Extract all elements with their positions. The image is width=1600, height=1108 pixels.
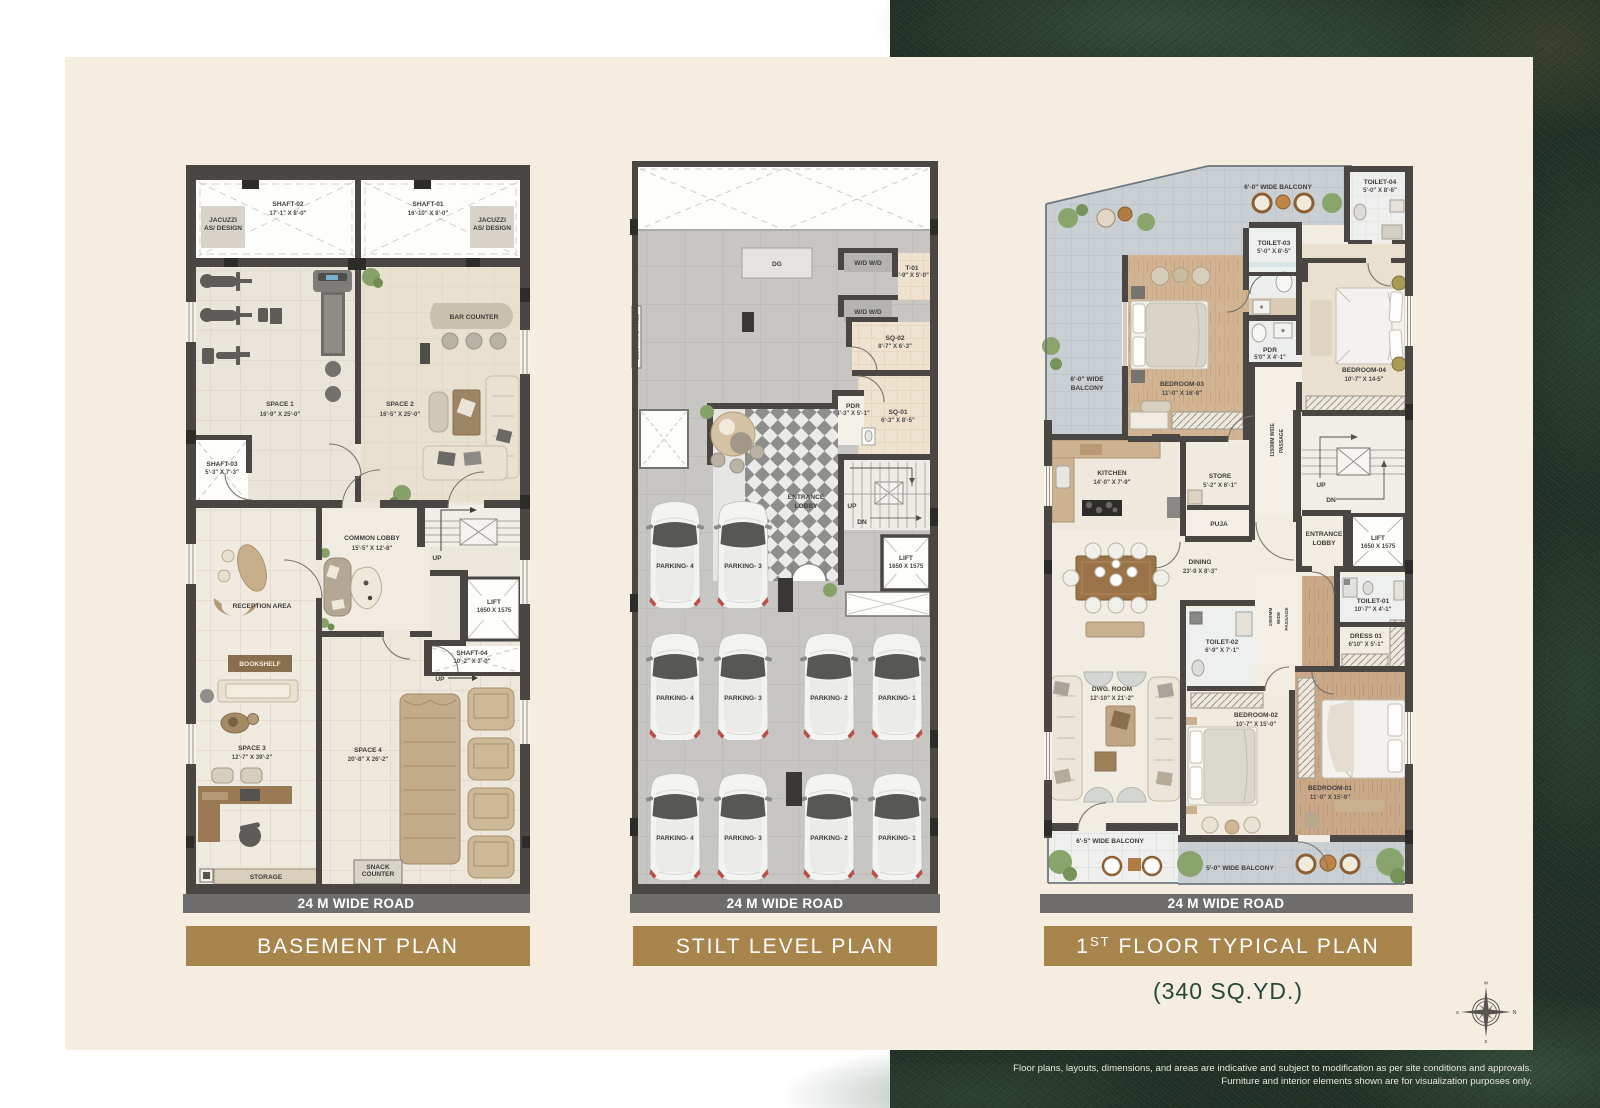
svg-text:TOILET-03: TOILET-03 xyxy=(1258,240,1291,247)
svg-text:LIFT: LIFT xyxy=(899,555,913,562)
svg-text:RECEPTION AREA: RECEPTION AREA xyxy=(233,603,292,610)
svg-text:UP: UP xyxy=(432,555,442,562)
svg-text:S: S xyxy=(1456,1010,1459,1015)
svg-text:COMMON LOBBY: COMMON LOBBY xyxy=(344,535,400,542)
svg-text:BALCONY: BALCONY xyxy=(1071,385,1104,392)
svg-text:BOOKSHELF: BOOKSHELF xyxy=(239,661,280,668)
svg-text:SHAFT-03: SHAFT-03 xyxy=(206,461,237,468)
svg-text:16'-9" X 25'-0": 16'-9" X 25'-0" xyxy=(260,411,301,418)
svg-text:5'-2" X 6'-1": 5'-2" X 6'-1" xyxy=(1203,482,1237,489)
svg-text:8'-7" X 6'-3": 8'-7" X 6'-3" xyxy=(878,343,912,350)
svg-text:PARKING- 3: PARKING- 3 xyxy=(724,835,762,842)
svg-text:JACUZZI: JACUZZI xyxy=(478,217,506,224)
svg-text:STILT LEVEL PLAN: STILT LEVEL PLAN xyxy=(676,935,894,958)
svg-text:12'-7" X 39'-2": 12'-7" X 39'-2" xyxy=(232,754,273,761)
svg-text:WIDE: WIDE xyxy=(1276,611,1282,624)
svg-text:COUNTER: COUNTER xyxy=(362,871,395,878)
svg-text:PASSAGE: PASSAGE xyxy=(1279,428,1285,453)
svg-text:SQ-02: SQ-02 xyxy=(885,335,904,342)
svg-text:1650 X 1575: 1650 X 1575 xyxy=(477,607,512,614)
svg-text:AS/ DESIGN: AS/ DESIGN xyxy=(473,225,511,232)
svg-text:PARKING- 3: PARKING- 3 xyxy=(724,695,762,702)
svg-text:Floor plans, layouts, dimensio: Floor plans, layouts, dimensions, and ar… xyxy=(1013,1063,1532,1074)
svg-text:PARKING- 3: PARKING- 3 xyxy=(724,563,762,570)
svg-text:PDR: PDR xyxy=(846,403,860,410)
svg-text:5'0" X 4'-1": 5'0" X 4'-1" xyxy=(1254,354,1286,361)
svg-text:N: N xyxy=(1513,1010,1517,1016)
svg-text:6'-0" WIDE: 6'-0" WIDE xyxy=(1070,376,1104,383)
svg-text:14'-0" X 7'-9": 14'-0" X 7'-9" xyxy=(1093,479,1130,486)
svg-text:UP: UP xyxy=(1316,482,1326,489)
svg-text:11'-0" X 15'-9": 11'-0" X 15'-9" xyxy=(1310,794,1350,801)
svg-text:PARKING- 4: PARKING- 4 xyxy=(656,563,694,570)
svg-text:SPACE 3: SPACE 3 xyxy=(238,745,266,752)
svg-text:1ST FLOOR TYPICAL PLAN: 1ST FLOOR TYPICAL PLAN xyxy=(1076,934,1379,958)
svg-text:KITCHEN: KITCHEN xyxy=(1097,470,1127,477)
svg-text:PDR: PDR xyxy=(1263,347,1277,354)
svg-text:PARKING- 2: PARKING- 2 xyxy=(810,835,848,842)
svg-text:SPACE 4: SPACE 4 xyxy=(354,747,382,754)
svg-text:4'-9" X 5'-0": 4'-9" X 5'-0" xyxy=(895,272,929,279)
svg-text:LIFT: LIFT xyxy=(487,599,501,606)
svg-text:LOBBY: LOBBY xyxy=(794,503,818,510)
svg-text:TOILET-04: TOILET-04 xyxy=(1364,179,1397,186)
svg-text:SPACE 1: SPACE 1 xyxy=(266,401,294,408)
svg-text:5'-0" WIDE BALCONY: 5'-0" WIDE BALCONY xyxy=(1206,865,1274,872)
svg-text:6'10" X 5'-1": 6'10" X 5'-1" xyxy=(1348,641,1383,648)
svg-text:TOILET-02: TOILET-02 xyxy=(1206,639,1239,646)
svg-text:10'-7" X 4'-1": 10'-7" X 4'-1" xyxy=(1354,606,1391,613)
svg-text:12'-10" X 21'-2": 12'-10" X 21'-2" xyxy=(1090,695,1134,702)
svg-text:PARKING- 1: PARKING- 1 xyxy=(878,695,916,702)
svg-text:DRESS 01: DRESS 01 xyxy=(1350,633,1382,640)
svg-text:SPACE 2: SPACE 2 xyxy=(386,401,414,408)
svg-text:ENTRANCE: ENTRANCE xyxy=(788,494,825,501)
svg-text:DN: DN xyxy=(1326,497,1336,504)
svg-text:16'-10" X 8'-0": 16'-10" X 8'-0" xyxy=(408,210,449,217)
svg-text:BEDROOM-03: BEDROOM-03 xyxy=(1160,381,1204,388)
svg-text:BEDROOM-02: BEDROOM-02 xyxy=(1234,712,1278,719)
svg-text:BEDROOM-01: BEDROOM-01 xyxy=(1308,785,1352,792)
svg-text:BEDROOM-04: BEDROOM-04 xyxy=(1342,367,1386,374)
svg-text:AS/ DESIGN: AS/ DESIGN xyxy=(204,225,242,232)
svg-text:ENTRANCE: ENTRANCE xyxy=(1306,531,1343,538)
svg-text:E: E xyxy=(1484,1039,1487,1044)
svg-text:24 M WIDE ROAD: 24 M WIDE ROAD xyxy=(727,896,844,911)
svg-text:(340 SQ.YD.): (340 SQ.YD.) xyxy=(1153,978,1303,1004)
svg-text:10'-7" X 14-5": 10'-7" X 14-5" xyxy=(1344,376,1383,383)
svg-text:SQ-01: SQ-01 xyxy=(888,409,907,416)
svg-text:24 M WIDE ROAD: 24 M WIDE ROAD xyxy=(298,896,415,911)
svg-text:SHAFT-04: SHAFT-04 xyxy=(456,650,487,657)
svg-text:SNACK: SNACK xyxy=(366,864,390,871)
svg-text:PARKING- 4: PARKING- 4 xyxy=(656,695,694,702)
svg-text:JACUZZI: JACUZZI xyxy=(209,217,237,224)
svg-text:5'-0" X 8'-5": 5'-0" X 8'-5" xyxy=(1257,248,1291,255)
svg-text:T-01: T-01 xyxy=(905,265,919,272)
svg-text:SHAFT-01: SHAFT-01 xyxy=(412,201,443,208)
svg-text:DG: DG xyxy=(772,261,782,268)
svg-text:DWG. ROOM: DWG. ROOM xyxy=(1092,686,1133,693)
svg-text:LOBBY: LOBBY xyxy=(1312,540,1336,547)
svg-text:5'-0" X 8'-6": 5'-0" X 8'-6" xyxy=(1363,187,1397,194)
svg-text:5'-3" X 7'-3": 5'-3" X 7'-3" xyxy=(205,469,239,476)
svg-text:DN: DN xyxy=(857,519,867,526)
svg-text:STORE: STORE xyxy=(1209,473,1232,480)
svg-text:6'-0" WIDE BALCONY: 6'-0" WIDE BALCONY xyxy=(1244,184,1312,191)
svg-text:6'-3" X 8'-5": 6'-3" X 8'-5" xyxy=(881,417,915,424)
svg-text:10'-2" X 3'-0": 10'-2" X 3'-0" xyxy=(453,658,490,665)
svg-text:1050MM: 1050MM xyxy=(1268,608,1274,627)
svg-text:4'-3" X 5'-1": 4'-3" X 5'-1" xyxy=(836,410,870,417)
svg-text:17'-1" X 8'-0": 17'-1" X 8'-0" xyxy=(269,210,306,217)
svg-text:W/D W/D: W/D W/D xyxy=(854,309,882,316)
svg-text:6'-9" X 7'-1": 6'-9" X 7'-1" xyxy=(1205,647,1239,654)
svg-text:TOILET-01: TOILET-01 xyxy=(1357,598,1390,605)
svg-text:DINING: DINING xyxy=(1188,559,1211,566)
svg-text:PUJA: PUJA xyxy=(1210,521,1228,528)
svg-text:BAR COUNTER: BAR COUNTER xyxy=(450,314,499,321)
svg-text:24 M WIDE ROAD: 24 M WIDE ROAD xyxy=(1168,896,1285,911)
svg-text:PARKING- 1: PARKING- 1 xyxy=(878,835,916,842)
svg-text:1650 X 1575: 1650 X 1575 xyxy=(1361,543,1396,550)
svg-text:PASSAGE: PASSAGE xyxy=(1284,607,1290,631)
svg-text:15'-5" X 12'-8": 15'-5" X 12'-8" xyxy=(352,545,393,552)
svg-text:6'-5" WIDE BALCONY: 6'-5" WIDE BALCONY xyxy=(1076,838,1144,845)
svg-text:SHAFT-02: SHAFT-02 xyxy=(272,201,303,208)
svg-text:LIFT: LIFT xyxy=(1371,535,1385,542)
svg-text:W/D W/D: W/D W/D xyxy=(854,260,882,267)
svg-text:PARKING- 4: PARKING- 4 xyxy=(656,835,694,842)
svg-text:16'-5" X 25'-0": 16'-5" X 25'-0" xyxy=(380,411,421,418)
svg-text:UP: UP xyxy=(435,676,445,683)
svg-text:1150MM WIDE: 1150MM WIDE xyxy=(1270,423,1276,457)
svg-text:PARKING- 2: PARKING- 2 xyxy=(810,695,848,702)
svg-text:23'-9 X 8'-3": 23'-9 X 8'-3" xyxy=(1183,568,1217,575)
svg-text:1650 X 1575: 1650 X 1575 xyxy=(889,563,924,570)
svg-text:STORAGE: STORAGE xyxy=(250,874,283,881)
svg-text:20'-8" X 26'-2": 20'-8" X 26'-2" xyxy=(348,756,389,763)
svg-text:Furniture and interior element: Furniture and interior elements shown ar… xyxy=(1221,1076,1532,1087)
svg-text:11'-0" X 16'-8": 11'-0" X 16'-8" xyxy=(1162,390,1202,397)
svg-text:UP: UP xyxy=(847,503,857,510)
svg-text:BASEMENT PLAN: BASEMENT PLAN xyxy=(257,935,459,958)
